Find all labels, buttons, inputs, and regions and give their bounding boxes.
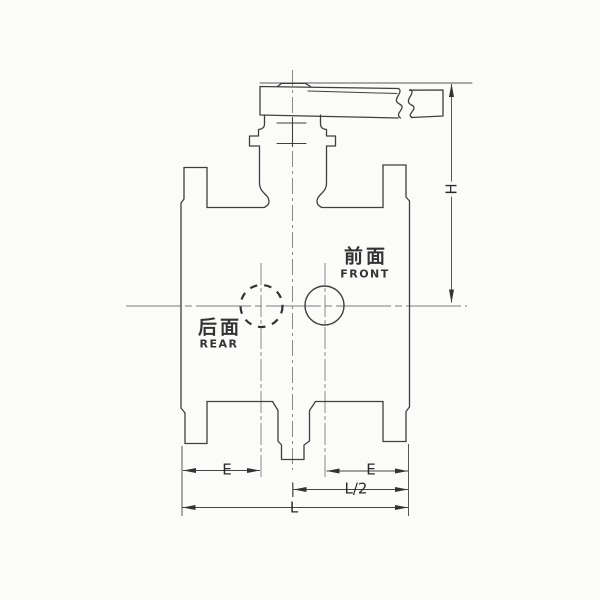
front-port-circle <box>305 286 344 325</box>
handle-lip-line <box>308 91 397 94</box>
technical-drawing-canvas: 前面 FRONT 后面 REAR H E E L/2 L <box>0 0 600 600</box>
right-flange-face <box>406 165 410 442</box>
dim-label-l: L <box>290 501 298 516</box>
rear-label-cn: 后面 <box>198 319 242 338</box>
valve-body <box>181 165 410 460</box>
arrow-l-left <box>183 505 196 510</box>
arrow-h-up <box>449 84 454 98</box>
arrow-h-down <box>449 290 454 304</box>
dim-label-l2: L/2 <box>345 482 368 497</box>
centerlines <box>126 70 467 497</box>
left-flange-face <box>181 168 185 444</box>
bonnet-left-profile <box>250 115 270 207</box>
handle-lever <box>260 83 472 118</box>
handle-end-piece <box>410 90 444 118</box>
handle-hub-cap <box>278 83 311 86</box>
rear-label-en: REAR <box>200 339 239 350</box>
arrow-l2-left <box>294 487 307 492</box>
arrow-e-left-b <box>247 468 260 473</box>
front-label-en: FRONT <box>340 269 390 280</box>
valve-drawing <box>0 0 600 600</box>
dim-label-e-left: E <box>222 463 231 478</box>
arrow-l-right <box>395 505 408 510</box>
arrow-e-right-b <box>395 469 408 474</box>
handle-break-line-right <box>408 90 414 118</box>
arrow-l2-right <box>395 487 408 492</box>
front-label-cn: 前面 <box>344 248 388 267</box>
arrow-e-right-a <box>327 469 340 474</box>
dim-label-e-right: E <box>366 463 375 478</box>
dim-label-h: H <box>445 181 460 196</box>
bonnet-right-profile <box>317 115 336 207</box>
bottom-drain-boss <box>273 402 316 460</box>
dimension-arrowheads <box>183 84 455 511</box>
dimension-lines <box>182 84 452 516</box>
handle-break-line-left <box>396 89 402 119</box>
arrow-e-left-a <box>183 468 196 473</box>
